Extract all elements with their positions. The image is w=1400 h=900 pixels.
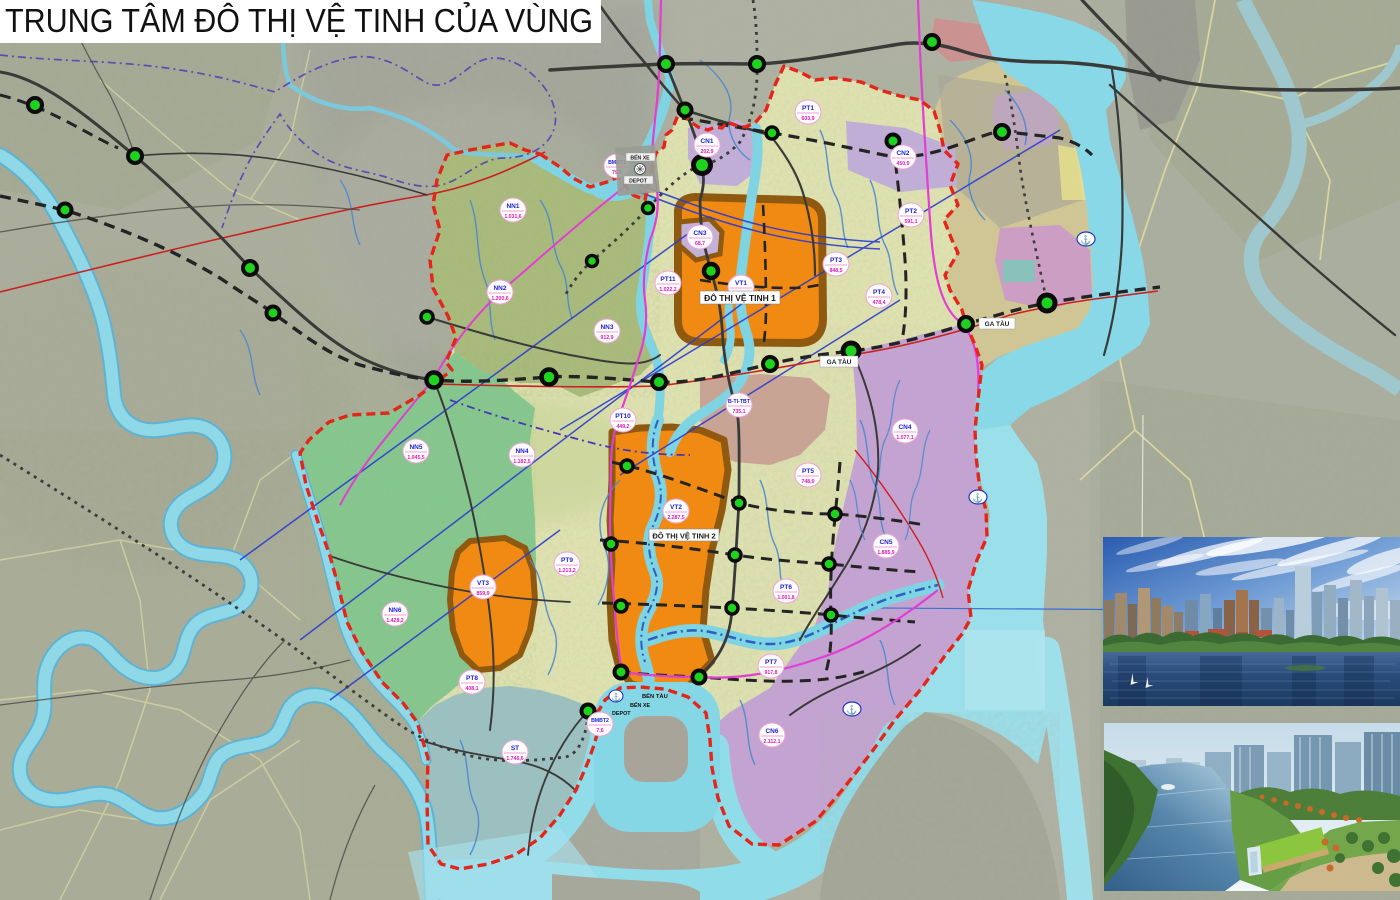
svg-text:NN2: NN2 [493, 285, 506, 292]
svg-text:202,9: 202,9 [701, 149, 714, 155]
svg-text:1.746,6: 1.746,6 [506, 756, 523, 762]
svg-text:DEPOT: DEPOT [629, 179, 648, 185]
svg-text:⚓: ⚓ [972, 492, 983, 503]
svg-text:VT2: VT2 [670, 504, 682, 511]
svg-text:CN3: CN3 [693, 230, 706, 237]
svg-text:912,9: 912,9 [601, 335, 614, 341]
svg-text:BẾN XE: BẾN XE [630, 702, 650, 709]
svg-text:PT1: PT1 [802, 105, 814, 112]
svg-text:PT2: PT2 [905, 208, 917, 215]
svg-text:PT11: PT11 [660, 276, 676, 283]
svg-text:1.182,5: 1.182,5 [513, 459, 530, 465]
svg-text:748,9: 748,9 [802, 479, 815, 485]
svg-text:CN1: CN1 [700, 138, 713, 145]
svg-text:⚓: ⚓ [611, 692, 621, 702]
svg-text:449,2: 449,2 [617, 424, 630, 430]
svg-text:1.001,8: 1.001,8 [777, 595, 794, 601]
svg-text:B-TI-TBT: B-TI-TBT [728, 399, 751, 405]
svg-text:2.287,5: 2.287,5 [667, 515, 684, 521]
svg-text:478,4: 478,4 [873, 300, 886, 306]
svg-text:GA TÀU: GA TÀU [827, 357, 852, 366]
svg-text:CN4: CN4 [898, 424, 911, 431]
svg-text:NN3: NN3 [600, 324, 613, 331]
svg-text:603,9: 603,9 [802, 116, 815, 122]
svg-text:NN1: NN1 [506, 203, 519, 210]
svg-text:PT5: PT5 [802, 468, 814, 475]
svg-text:VT1: VT1 [735, 280, 747, 287]
svg-text:DEPOT: DEPOT [612, 711, 631, 717]
svg-text:PT8: PT8 [466, 675, 478, 682]
svg-text:⚓: ⚓ [846, 704, 857, 715]
svg-text:PT9: PT9 [561, 557, 573, 564]
svg-text:PT10: PT10 [615, 413, 631, 420]
svg-text:1.428,2: 1.428,2 [386, 618, 403, 624]
svg-text:917,8: 917,8 [765, 670, 778, 676]
svg-text:PT4: PT4 [873, 289, 885, 296]
svg-text:859,9: 859,9 [477, 591, 490, 597]
svg-text:591,1: 591,1 [905, 219, 918, 225]
svg-text:68,7: 68,7 [695, 241, 705, 247]
svg-text:1.885,9: 1.885,9 [877, 550, 894, 556]
svg-text:2.112,1: 2.112,1 [763, 739, 780, 745]
svg-text:ĐÔ THỊ VỆ TINH 2: ĐÔ THỊ VỆ TINH 2 [652, 532, 715, 541]
svg-text:848,5: 848,5 [830, 268, 843, 274]
svg-text:PT3: PT3 [830, 257, 842, 264]
svg-text:ĐÔ THỊ VỆ TINH 1: ĐÔ THỊ VỆ TINH 1 [704, 292, 776, 303]
svg-text:NN4: NN4 [515, 448, 528, 455]
svg-text:CN5: CN5 [879, 539, 892, 546]
svg-text:ST: ST [511, 745, 519, 752]
svg-text:BẾN XE: BẾN XE [630, 155, 650, 162]
svg-text:1.200,6: 1.200,6 [491, 296, 508, 302]
svg-text:NN5: NN5 [409, 444, 422, 451]
svg-text:1.077,1: 1.077,1 [896, 435, 913, 441]
svg-text:1.045,5: 1.045,5 [407, 455, 424, 461]
svg-text:TRUNG TÂM ĐÔ THỊ VỆ TINH CỦA V: TRUNG TÂM ĐÔ THỊ VỆ TINH CỦA VÙNG [5, 2, 593, 39]
svg-text:CN2: CN2 [896, 150, 909, 157]
svg-text:PT7: PT7 [765, 659, 777, 666]
svg-text:1.213,2: 1.213,2 [558, 568, 575, 574]
svg-text:1.022,2: 1.022,2 [659, 287, 676, 293]
svg-text:BẾN TÀU: BẾN TÀU [642, 693, 668, 700]
svg-text:GA TÀU: GA TÀU [985, 319, 1010, 328]
svg-text:CN6: CN6 [765, 728, 778, 735]
svg-text:⚓: ⚓ [1080, 234, 1091, 245]
svg-text:735,1: 735,1 [733, 409, 746, 415]
svg-text:450,9: 450,9 [897, 161, 910, 167]
svg-text:7,6: 7,6 [596, 728, 603, 734]
svg-text:408,1: 408,1 [466, 686, 479, 692]
svg-text:BMBT2: BMBT2 [591, 718, 609, 724]
svg-text:NN6: NN6 [388, 607, 401, 614]
svg-text:1.031,6: 1.031,6 [504, 214, 521, 220]
svg-text:PT6: PT6 [780, 584, 792, 591]
svg-text:VT3: VT3 [477, 580, 489, 587]
